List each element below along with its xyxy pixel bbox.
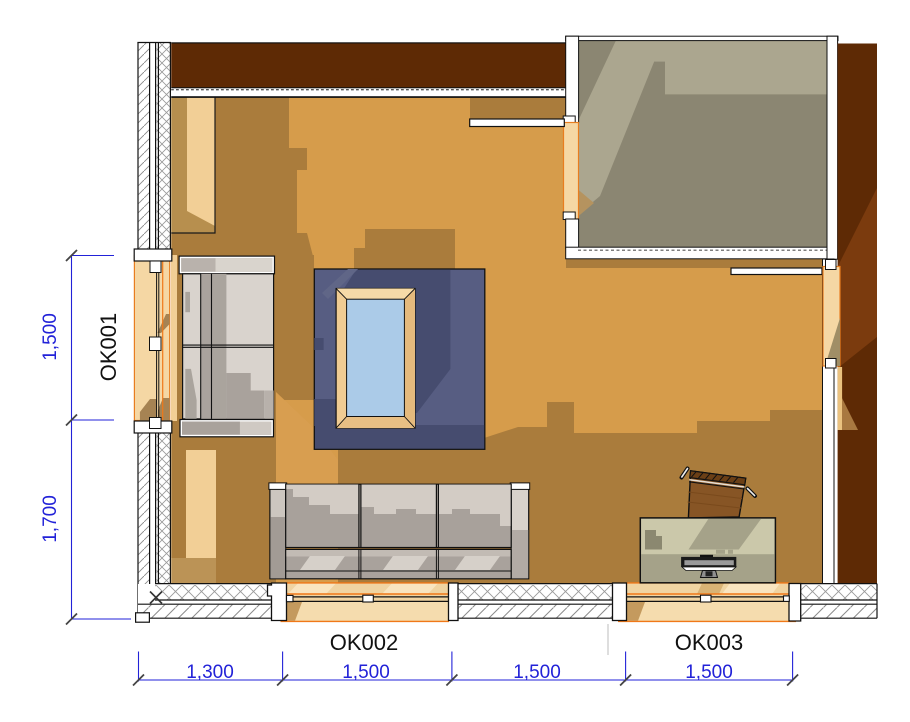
svg-text:1,500: 1,500	[40, 313, 61, 361]
svg-text:1,500: 1,500	[342, 662, 390, 683]
svg-text:OK001: OK001	[96, 313, 121, 382]
svg-text:1,700: 1,700	[40, 495, 61, 543]
svg-text:1,500: 1,500	[513, 662, 561, 683]
svg-text:OK003: OK003	[675, 630, 744, 655]
svg-text:1,300: 1,300	[186, 662, 234, 683]
svg-text:1,500: 1,500	[685, 662, 733, 683]
svg-text:OK002: OK002	[330, 630, 399, 655]
